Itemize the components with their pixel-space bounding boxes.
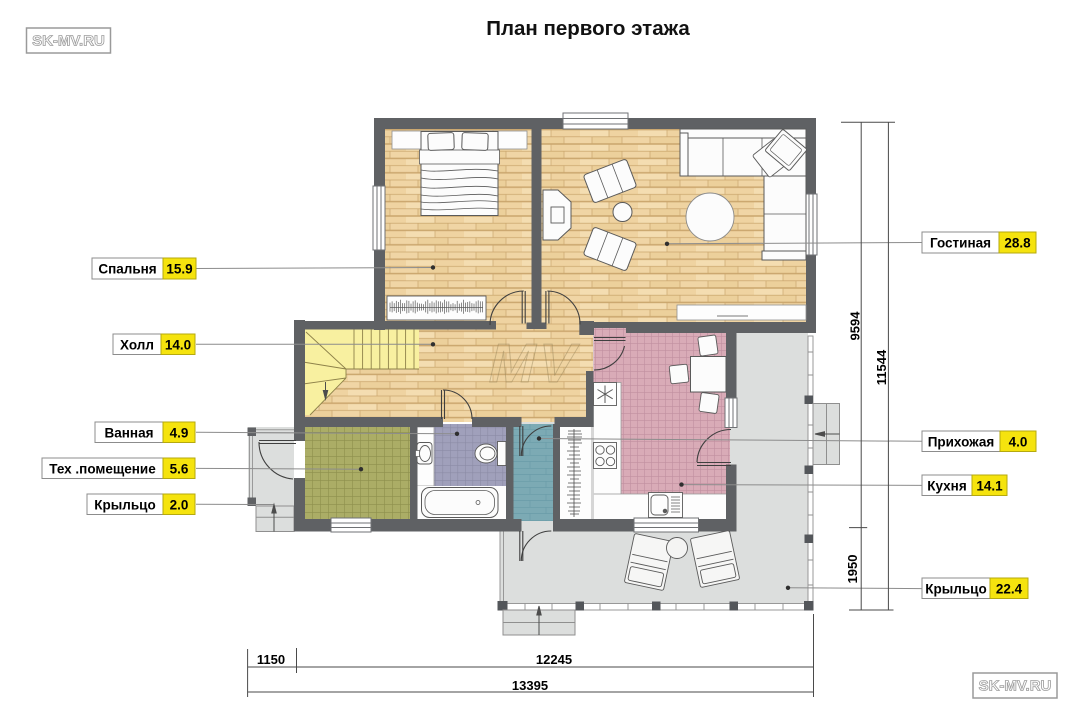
svg-text:14.0: 14.0 bbox=[165, 337, 191, 352]
svg-text:Спальня: Спальня bbox=[98, 262, 156, 277]
svg-text:5.6: 5.6 bbox=[170, 461, 189, 476]
svg-text:План первого этажа: План первого этажа bbox=[486, 17, 690, 40]
svg-text:4.0: 4.0 bbox=[1009, 434, 1028, 449]
svg-text:1150: 1150 bbox=[257, 652, 285, 667]
svg-text:Ванная: Ванная bbox=[105, 425, 154, 440]
svg-text:Холл: Холл bbox=[120, 337, 154, 352]
svg-text:Крыльцо: Крыльцо bbox=[94, 497, 155, 512]
svg-text:22.4: 22.4 bbox=[996, 581, 1023, 596]
svg-text:11544: 11544 bbox=[874, 349, 889, 385]
svg-text:12245: 12245 bbox=[536, 652, 572, 667]
svg-text:SK-MV.RU: SK-MV.RU bbox=[979, 678, 1052, 695]
svg-text:Крыльцо: Крыльцо bbox=[925, 581, 986, 596]
svg-text:14.1: 14.1 bbox=[976, 478, 1003, 493]
svg-text:28.8: 28.8 bbox=[1004, 236, 1031, 251]
svg-text:4.9: 4.9 bbox=[170, 425, 189, 440]
svg-text:Гостиная: Гостиная bbox=[930, 236, 991, 251]
svg-text:1950: 1950 bbox=[845, 555, 860, 584]
svg-text:15.9: 15.9 bbox=[166, 262, 192, 277]
svg-text:Кухня: Кухня bbox=[927, 478, 966, 493]
svg-text:SK-MV.RU: SK-MV.RU bbox=[32, 33, 105, 50]
svg-text:9594: 9594 bbox=[848, 311, 863, 341]
svg-text:2.0: 2.0 bbox=[170, 497, 189, 512]
svg-text:Прихожая: Прихожая bbox=[928, 434, 995, 449]
svg-text:MV: MV bbox=[483, 333, 586, 394]
svg-text:13395: 13395 bbox=[512, 678, 548, 693]
svg-text:Тех .помещение: Тех .помещение bbox=[49, 461, 156, 476]
